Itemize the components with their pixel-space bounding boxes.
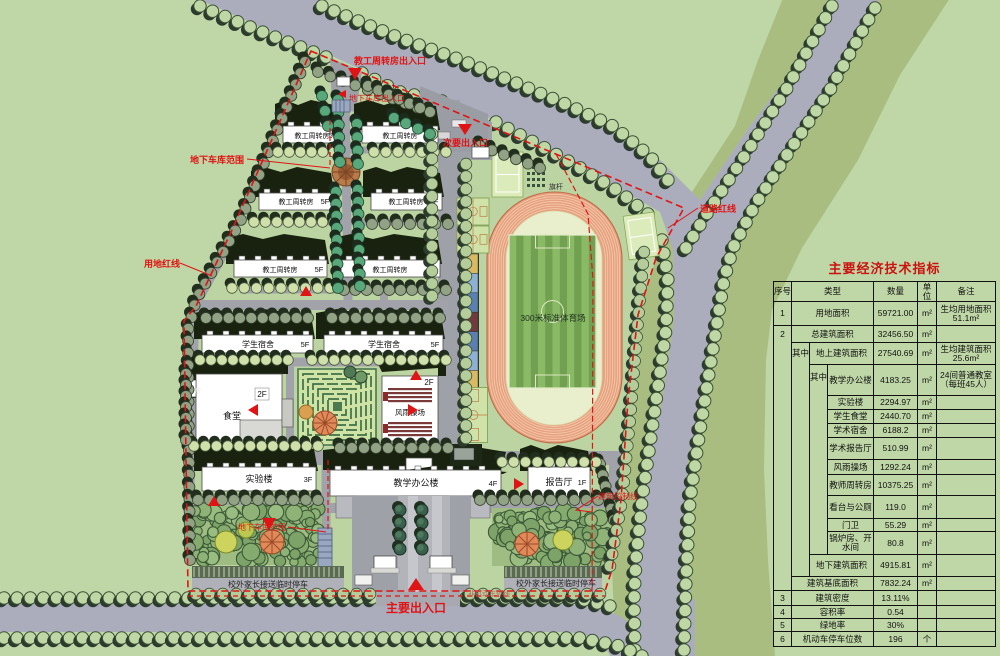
svg-text:建筑控制线: 建筑控制线 (598, 491, 638, 501)
svg-text:用地红线: 用地红线 (143, 258, 180, 269)
svg-text:5F: 5F (301, 340, 310, 349)
svg-text:学生宿舍: 学生宿舍 (368, 339, 400, 349)
svg-text:5F: 5F (431, 340, 440, 349)
svg-text:教工周转房: 教工周转房 (389, 197, 424, 206)
svg-text:非机动车停线: 非机动车停线 (468, 589, 510, 598)
svg-text:教学办公楼: 教学办公楼 (393, 477, 438, 488)
svg-text:教工周转房: 教工周转房 (383, 131, 418, 140)
svg-text:主要出入口: 主要出入口 (386, 600, 446, 615)
svg-text:1F: 1F (578, 478, 587, 487)
svg-text:地下车库范围: 地下车库范围 (238, 522, 286, 532)
svg-text:教工周转房: 教工周转房 (279, 197, 314, 206)
svg-text:校外家长接送临时停车: 校外家长接送临时停车 (228, 579, 308, 589)
svg-text:报告厅: 报告厅 (545, 476, 572, 487)
svg-text:5F: 5F (321, 197, 330, 206)
svg-text:旗杆: 旗杆 (549, 182, 563, 191)
svg-text:学生宿舍: 学生宿舍 (242, 339, 274, 349)
svg-text:4F: 4F (489, 479, 498, 488)
svg-text:次要出入口: 次要出入口 (443, 137, 488, 148)
svg-text:教工周转房: 教工周转房 (263, 265, 298, 274)
svg-text:道路红线: 道路红线 (700, 203, 736, 214)
svg-text:食堂: 食堂 (223, 410, 241, 421)
svg-text:2F: 2F (424, 378, 433, 387)
svg-text:地下车库出入口: 地下车库出入口 (349, 93, 405, 103)
svg-text:地下车库范围: 地下车库范围 (190, 154, 244, 165)
svg-text:2F: 2F (257, 390, 266, 399)
svg-text:实验楼: 实验楼 (245, 473, 272, 484)
svg-text:教工周转房出入口: 教工周转房出入口 (353, 55, 426, 66)
svg-text:5F: 5F (315, 265, 324, 274)
svg-text:教工周转房: 教工周转房 (295, 131, 330, 140)
svg-text:教工周转房: 教工周转房 (373, 265, 408, 274)
svg-text:校外家长接送临时停车: 校外家长接送临时停车 (516, 578, 596, 588)
svg-text:3F: 3F (304, 475, 313, 484)
svg-text:300米标准体育场: 300米标准体育场 (520, 313, 585, 323)
